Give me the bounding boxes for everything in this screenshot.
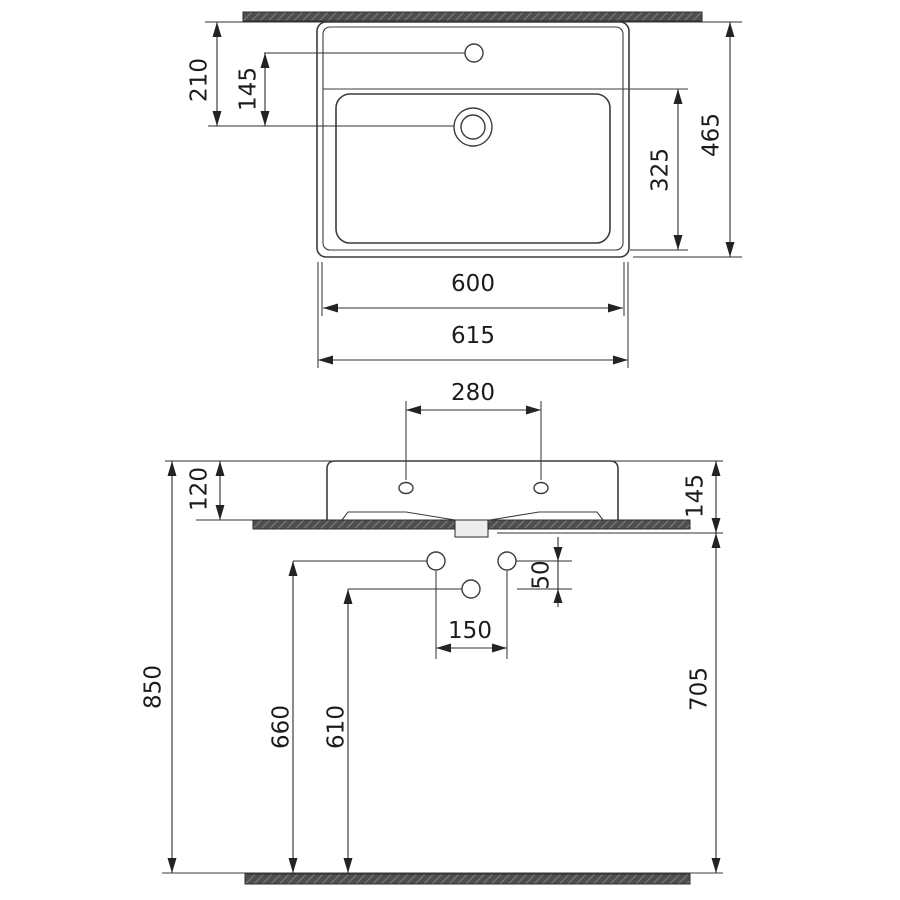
technical-drawing-page: 210 145 325 465 600 (0, 0, 900, 900)
dim-overall-depth: 465 (699, 22, 735, 257)
top-view: 210 145 325 465 600 (187, 12, 742, 368)
supply-connection-right (498, 552, 516, 570)
dim-basin-depth: 325 (648, 89, 683, 250)
dim-50-label: 50 (529, 560, 555, 589)
dim-850-label: 850 (141, 665, 167, 709)
dim-280-label: 280 (451, 380, 495, 406)
dim-apron-height: 120 (187, 461, 225, 520)
supply-connection-left (427, 552, 445, 570)
dim-rim-height: 850 (141, 461, 177, 873)
sink-body-front (327, 461, 618, 520)
dim-600-label: 600 (451, 271, 495, 297)
wall-strip (243, 12, 702, 21)
dim-150-label: 150 (448, 618, 492, 644)
faucet-hole (465, 44, 483, 62)
drain-hole-inner (461, 115, 485, 139)
dim-145-top-label: 145 (236, 67, 262, 111)
dim-supply-offset: 50 (529, 537, 563, 607)
dim-faucet-to-drain: 145 (236, 53, 270, 126)
dim-supply-height: 660 (269, 561, 298, 873)
dim-660-label: 660 (269, 705, 295, 749)
drain-hole-outer (454, 108, 492, 146)
dim-120-label: 120 (187, 467, 213, 511)
washbasin-dimension-drawing: 210 145 325 465 600 (0, 0, 900, 900)
dim-overall-width: 615 (318, 323, 628, 365)
dim-465-label: 465 (699, 113, 725, 157)
dim-basin-width: 600 (323, 271, 623, 313)
drain-stub (455, 520, 488, 537)
dim-210-label: 210 (187, 58, 213, 102)
counter-strip-left (253, 520, 455, 529)
dim-325-label: 325 (648, 148, 674, 192)
counter-strip-right (488, 520, 690, 529)
dim-drain-height: 610 (324, 589, 353, 873)
dim-705-label: 705 (687, 667, 713, 711)
dim-underside-height: 705 (687, 533, 721, 873)
dim-610-label: 610 (324, 705, 350, 749)
dim-faucet-setback: 210 (187, 22, 222, 126)
front-view: 280 120 145 50 150 (141, 380, 723, 884)
drain-connection (462, 580, 480, 598)
dim-615-label: 615 (451, 323, 495, 349)
floor-strip (245, 874, 690, 884)
dim-145-front-label: 145 (683, 474, 709, 518)
basin (336, 94, 610, 243)
